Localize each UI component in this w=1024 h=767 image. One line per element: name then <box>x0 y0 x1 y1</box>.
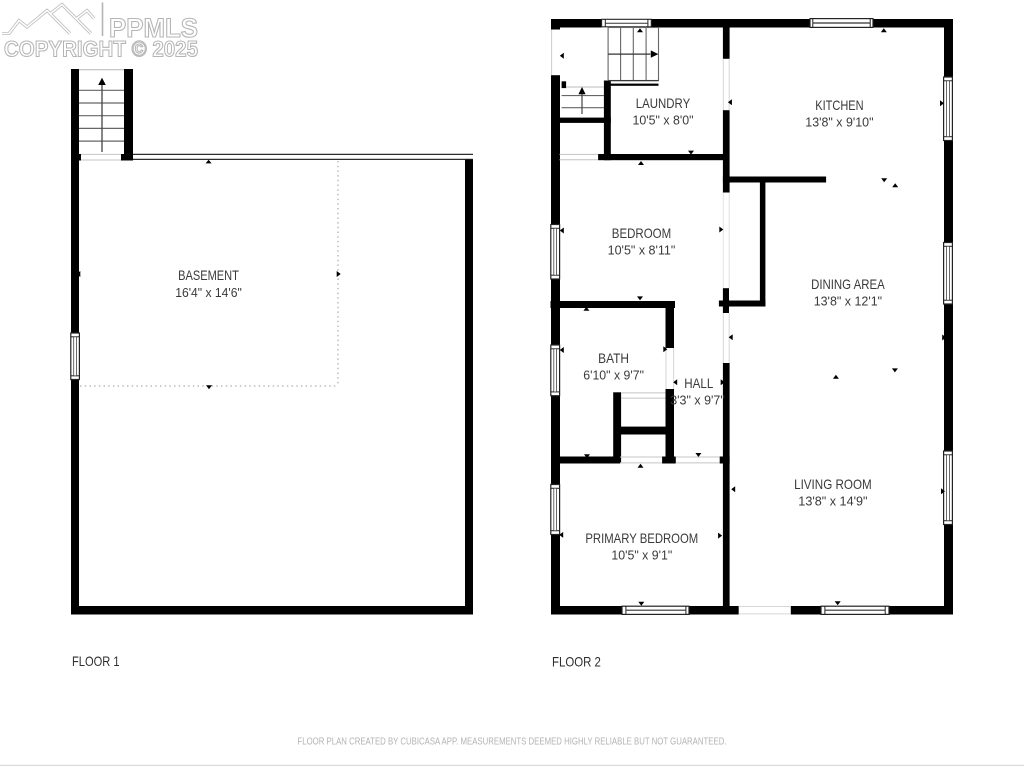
svg-text:6'10" x 9'7": 6'10" x 9'7" <box>583 368 644 383</box>
svg-text:10'5" x 8'0": 10'5" x 8'0" <box>633 113 694 128</box>
svg-text:LAUNDRY: LAUNDRY <box>636 96 691 111</box>
svg-text:BASEMENT: BASEMENT <box>178 268 239 283</box>
svg-text:13'8" x 12'1": 13'8" x 12'1" <box>814 294 883 309</box>
svg-text:16'4" x 14'6": 16'4" x 14'6" <box>175 285 242 300</box>
svg-text:FLOOR 1: FLOOR 1 <box>72 653 120 669</box>
svg-text:10'5" x 9'1": 10'5" x 9'1" <box>611 548 672 563</box>
svg-text:FLOOR PLAN CREATED BY CUBICASA: FLOOR PLAN CREATED BY CUBICASA APP. MEAS… <box>298 736 727 748</box>
svg-text:HALL: HALL <box>684 376 713 391</box>
svg-text:FLOOR 2: FLOOR 2 <box>552 654 601 670</box>
svg-text:10'5" x 8'11": 10'5" x 8'11" <box>608 243 676 258</box>
svg-text:PRIMARY BEDROOM: PRIMARY BEDROOM <box>585 531 698 546</box>
svg-text:BATH: BATH <box>598 351 629 366</box>
svg-text:DINING AREA: DINING AREA <box>811 277 885 292</box>
svg-text:COPYRIGHT © 2025: COPYRIGHT © 2025 <box>4 36 198 61</box>
svg-text:13'8" x 9'10": 13'8" x 9'10" <box>805 115 874 130</box>
svg-text:13'8" x 14'9": 13'8" x 14'9" <box>798 494 868 509</box>
svg-text:3'3" x 9'7": 3'3" x 9'7" <box>670 393 725 408</box>
svg-text:LIVING ROOM: LIVING ROOM <box>794 477 872 492</box>
svg-text:BEDROOM: BEDROOM <box>612 226 671 241</box>
svg-text:KITCHEN: KITCHEN <box>815 98 863 113</box>
